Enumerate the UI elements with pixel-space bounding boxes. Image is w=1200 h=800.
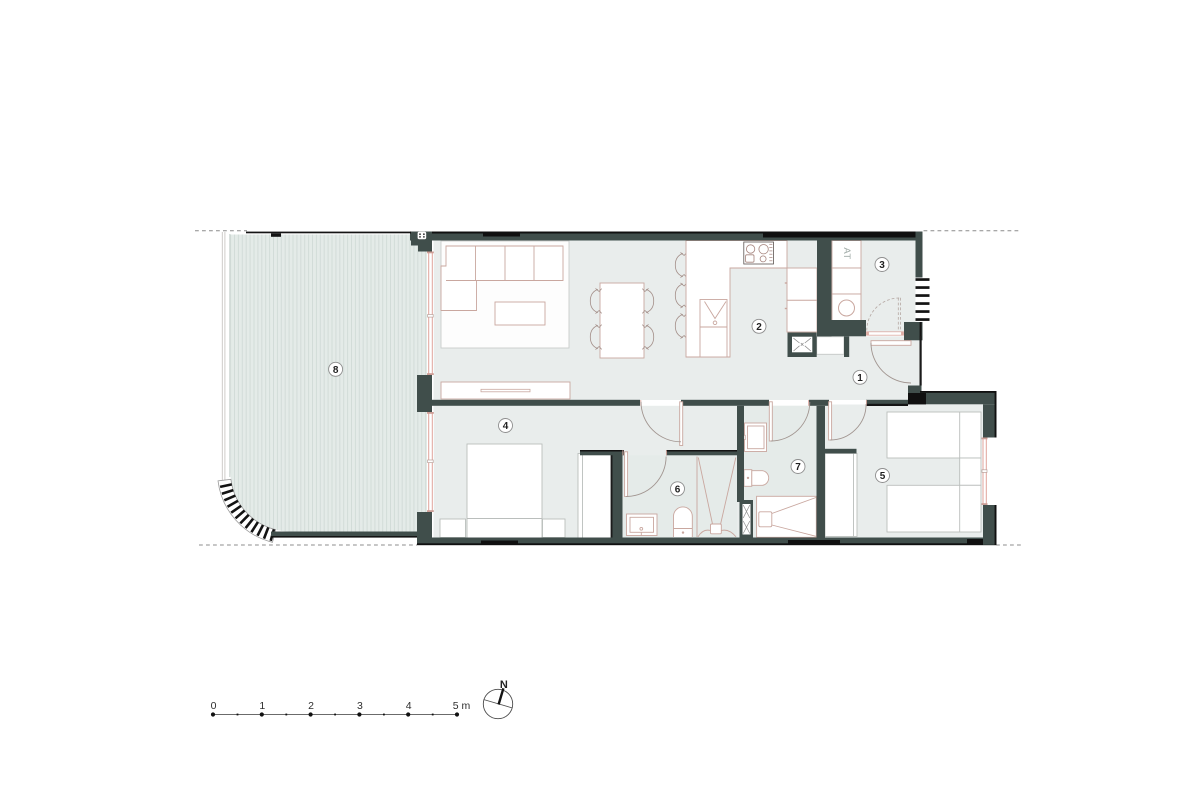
svg-text:2: 2: [308, 700, 314, 712]
svg-text:6: 6: [675, 484, 681, 495]
svg-text:5 m: 5 m: [453, 700, 471, 712]
svg-text:0: 0: [211, 700, 217, 712]
svg-text:3: 3: [879, 260, 885, 271]
svg-text:2: 2: [756, 322, 762, 333]
svg-text:4: 4: [503, 421, 509, 432]
svg-text:1: 1: [857, 373, 863, 384]
svg-text:3: 3: [357, 700, 363, 712]
svg-text:8: 8: [333, 365, 339, 376]
svg-text:AT: AT: [841, 247, 852, 259]
svg-text:4: 4: [406, 700, 412, 712]
svg-text:N: N: [500, 679, 508, 691]
svg-text:1: 1: [259, 700, 265, 712]
svg-text:7: 7: [795, 462, 801, 473]
svg-text:5: 5: [880, 471, 886, 482]
